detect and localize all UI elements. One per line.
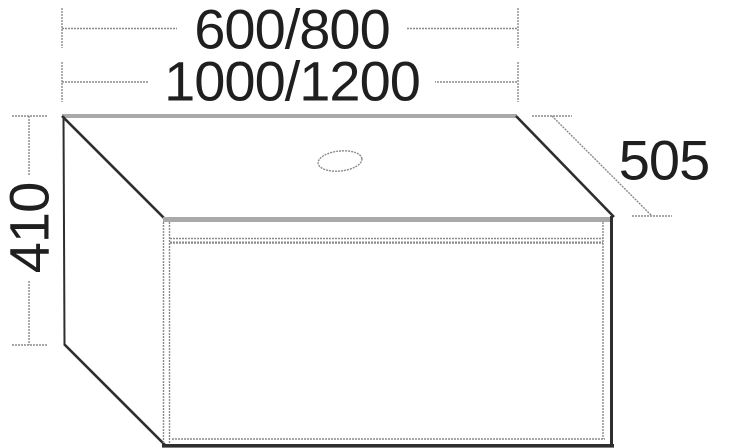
countertop-back-edge [62, 114, 517, 118]
cabinet-bottom-edge [162, 444, 614, 448]
vanity-dimension-drawing: 600/800 1000/1200 410 505 [0, 0, 730, 448]
dim-width-secondary-label: 1000/1200 [164, 50, 420, 113]
side-panel-bottom-edge [64, 344, 166, 446]
dim-height-label: 410 [0, 183, 61, 273]
cabinet-drawing [62, 114, 614, 448]
dim-height: 410 [0, 116, 61, 345]
tap-hole-cutout [317, 149, 363, 173]
dim-depth-label: 505 [619, 129, 709, 192]
countertop-left-edge [62, 116, 164, 218]
dim-depth: 505 [532, 116, 709, 216]
dim-width-secondary: 1000/1200 [62, 50, 518, 113]
countertop-right-edge [516, 116, 614, 217]
side-panel-back-edge [64, 116, 65, 344]
countertop-front-edge [163, 217, 613, 222]
drawing-svg: 600/800 1000/1200 410 505 [0, 0, 730, 448]
